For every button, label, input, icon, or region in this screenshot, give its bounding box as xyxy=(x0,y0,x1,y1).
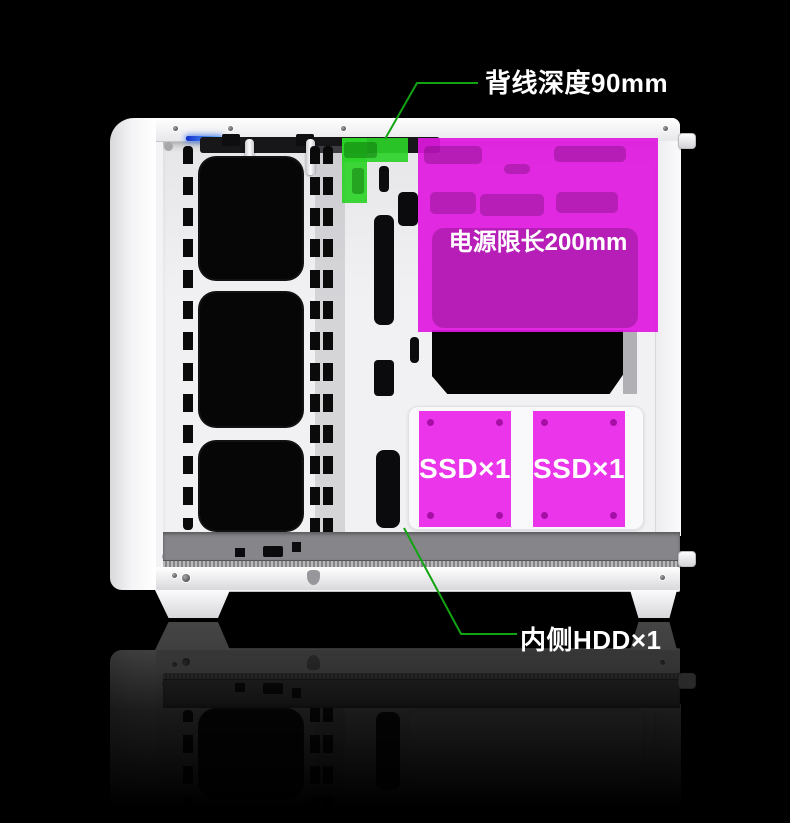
screw-dot xyxy=(660,575,665,580)
tray-slot xyxy=(379,166,389,192)
rear-edge-band xyxy=(655,141,681,536)
screw-dot xyxy=(341,126,346,131)
case-bottom-frame xyxy=(156,567,680,590)
vent-shadow xyxy=(504,164,530,174)
vent-shadow xyxy=(556,192,618,213)
ssd-slot-left: SSD×1 xyxy=(419,411,511,527)
pc-case: 电源限长200mm SSD×1 SSD×1 xyxy=(110,118,694,620)
vent-shadow xyxy=(554,146,626,162)
screw-dot xyxy=(496,512,503,519)
vent-shadow xyxy=(480,194,544,216)
highlight-shadow xyxy=(344,142,377,158)
tray-slot xyxy=(398,192,418,226)
thumbscrew-top xyxy=(678,133,696,149)
screw-dot xyxy=(663,126,668,131)
screw-dot xyxy=(427,419,434,426)
vent-shadow xyxy=(430,192,476,214)
psu-bay-side xyxy=(623,330,637,394)
psu-bay-opening xyxy=(432,330,623,394)
annotation-ssd-right: SSD×1 xyxy=(533,453,625,485)
cable-cutout-long xyxy=(374,215,394,325)
screw-dot xyxy=(173,126,178,131)
annotation-hdd-inner: 内侧HDD×1 xyxy=(520,620,661,657)
vent-shadow xyxy=(424,146,482,164)
floor-reflection: 电源限长200mm SSD×1 SSD×1 xyxy=(0,620,790,823)
cable-slot-column-left xyxy=(183,146,193,530)
screw-dot xyxy=(541,419,548,426)
reflection-fade xyxy=(0,620,790,823)
screw-dot xyxy=(427,512,434,519)
annotation-cable-depth: 背线深度90mm xyxy=(485,63,668,100)
screw-dot xyxy=(172,573,177,578)
annotation-psu-length: 电源限长200mm xyxy=(418,222,658,257)
screw-dot xyxy=(182,574,190,582)
highlight-shadow xyxy=(352,168,364,194)
tray-slot xyxy=(374,360,394,396)
cable-slot-column-mid-a xyxy=(310,146,320,563)
bottom-detail xyxy=(235,548,245,557)
fan-cutout-bottom xyxy=(198,440,304,532)
cable-cutout-lower xyxy=(376,450,400,528)
grommet-hole xyxy=(164,142,173,151)
annotation-ssd-left: SSD×1 xyxy=(419,453,511,485)
product-image: 电源限长200mm SSD×1 SSD×1 xyxy=(0,0,790,823)
screw-dot xyxy=(228,126,233,131)
cable-slot-column-mid-b xyxy=(323,146,333,563)
bottom-detail xyxy=(292,542,301,552)
screw-dot xyxy=(496,419,503,426)
rail-clip xyxy=(222,134,240,146)
fan-cutout-middle xyxy=(198,291,304,428)
screw-dot xyxy=(541,512,548,519)
screw-dot xyxy=(610,512,617,519)
case-foot-left xyxy=(155,590,230,618)
tray-slot xyxy=(410,337,419,363)
ssd-slot-right: SSD×1 xyxy=(533,411,625,527)
case-foot-right xyxy=(630,590,677,618)
fan-cutout-top xyxy=(198,156,304,281)
psu-zone-highlight: 电源限长200mm xyxy=(418,138,658,332)
bottom-detail xyxy=(263,546,283,557)
screw-dot xyxy=(610,419,617,426)
thumbscrew-bottom xyxy=(678,551,696,567)
